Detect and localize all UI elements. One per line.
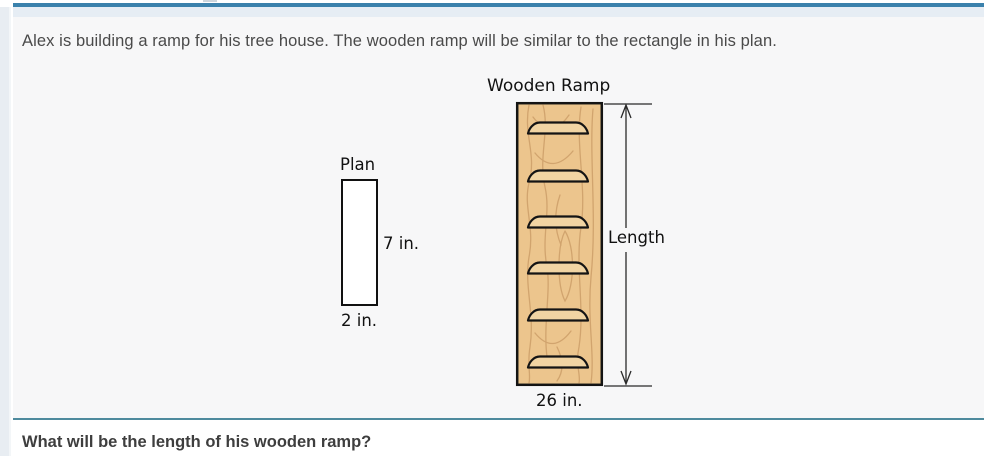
ramp-tread (528, 171, 588, 182)
ramp-base-label: 26 in. (536, 391, 583, 410)
problem-card (13, 3, 984, 419)
plan-rectangle (341, 179, 378, 306)
page: Alex is building a ramp for his tree hou… (0, 0, 984, 456)
cutoff-ui-notch (203, 0, 217, 2)
ramp-tread (528, 357, 588, 368)
plan-title: Plan (340, 155, 375, 174)
left-gutter (0, 7, 11, 456)
ramp-tread (528, 217, 588, 228)
plan-width-label: 2 in. (341, 311, 377, 330)
problem-statement: Alex is building a ramp for his tree hou… (22, 32, 777, 51)
ramp-tread (528, 263, 588, 274)
question-text: What will be the length of his wooden ra… (22, 433, 371, 452)
ramp-length-label: Length (606, 228, 667, 247)
card-header-band (13, 7, 984, 17)
ramp-illustration (505, 95, 685, 405)
plan-height-label: 7 in. (383, 234, 419, 253)
ramp-title: Wooden Ramp (487, 76, 610, 96)
ramp-tread (528, 310, 588, 321)
ramp-tread (528, 123, 588, 134)
